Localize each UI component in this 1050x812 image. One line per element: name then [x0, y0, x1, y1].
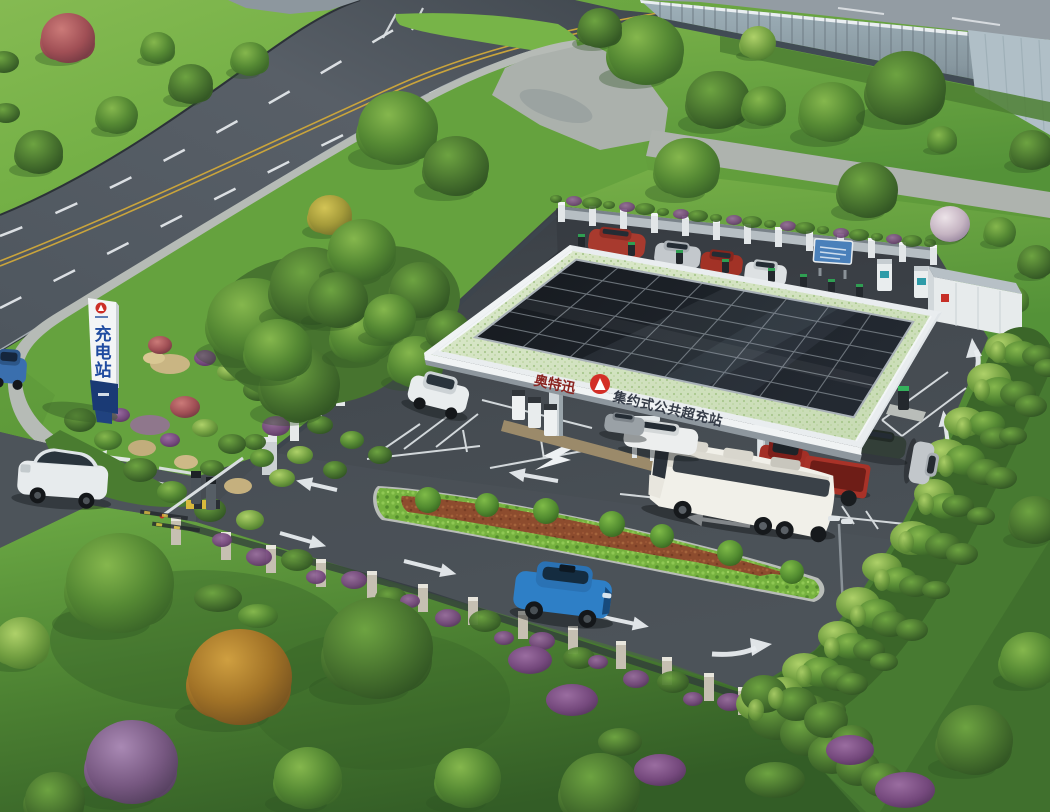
svg-text:站: 站 [95, 360, 112, 380]
svg-text:电: 电 [95, 342, 112, 362]
svg-text:充: 充 [95, 324, 112, 344]
